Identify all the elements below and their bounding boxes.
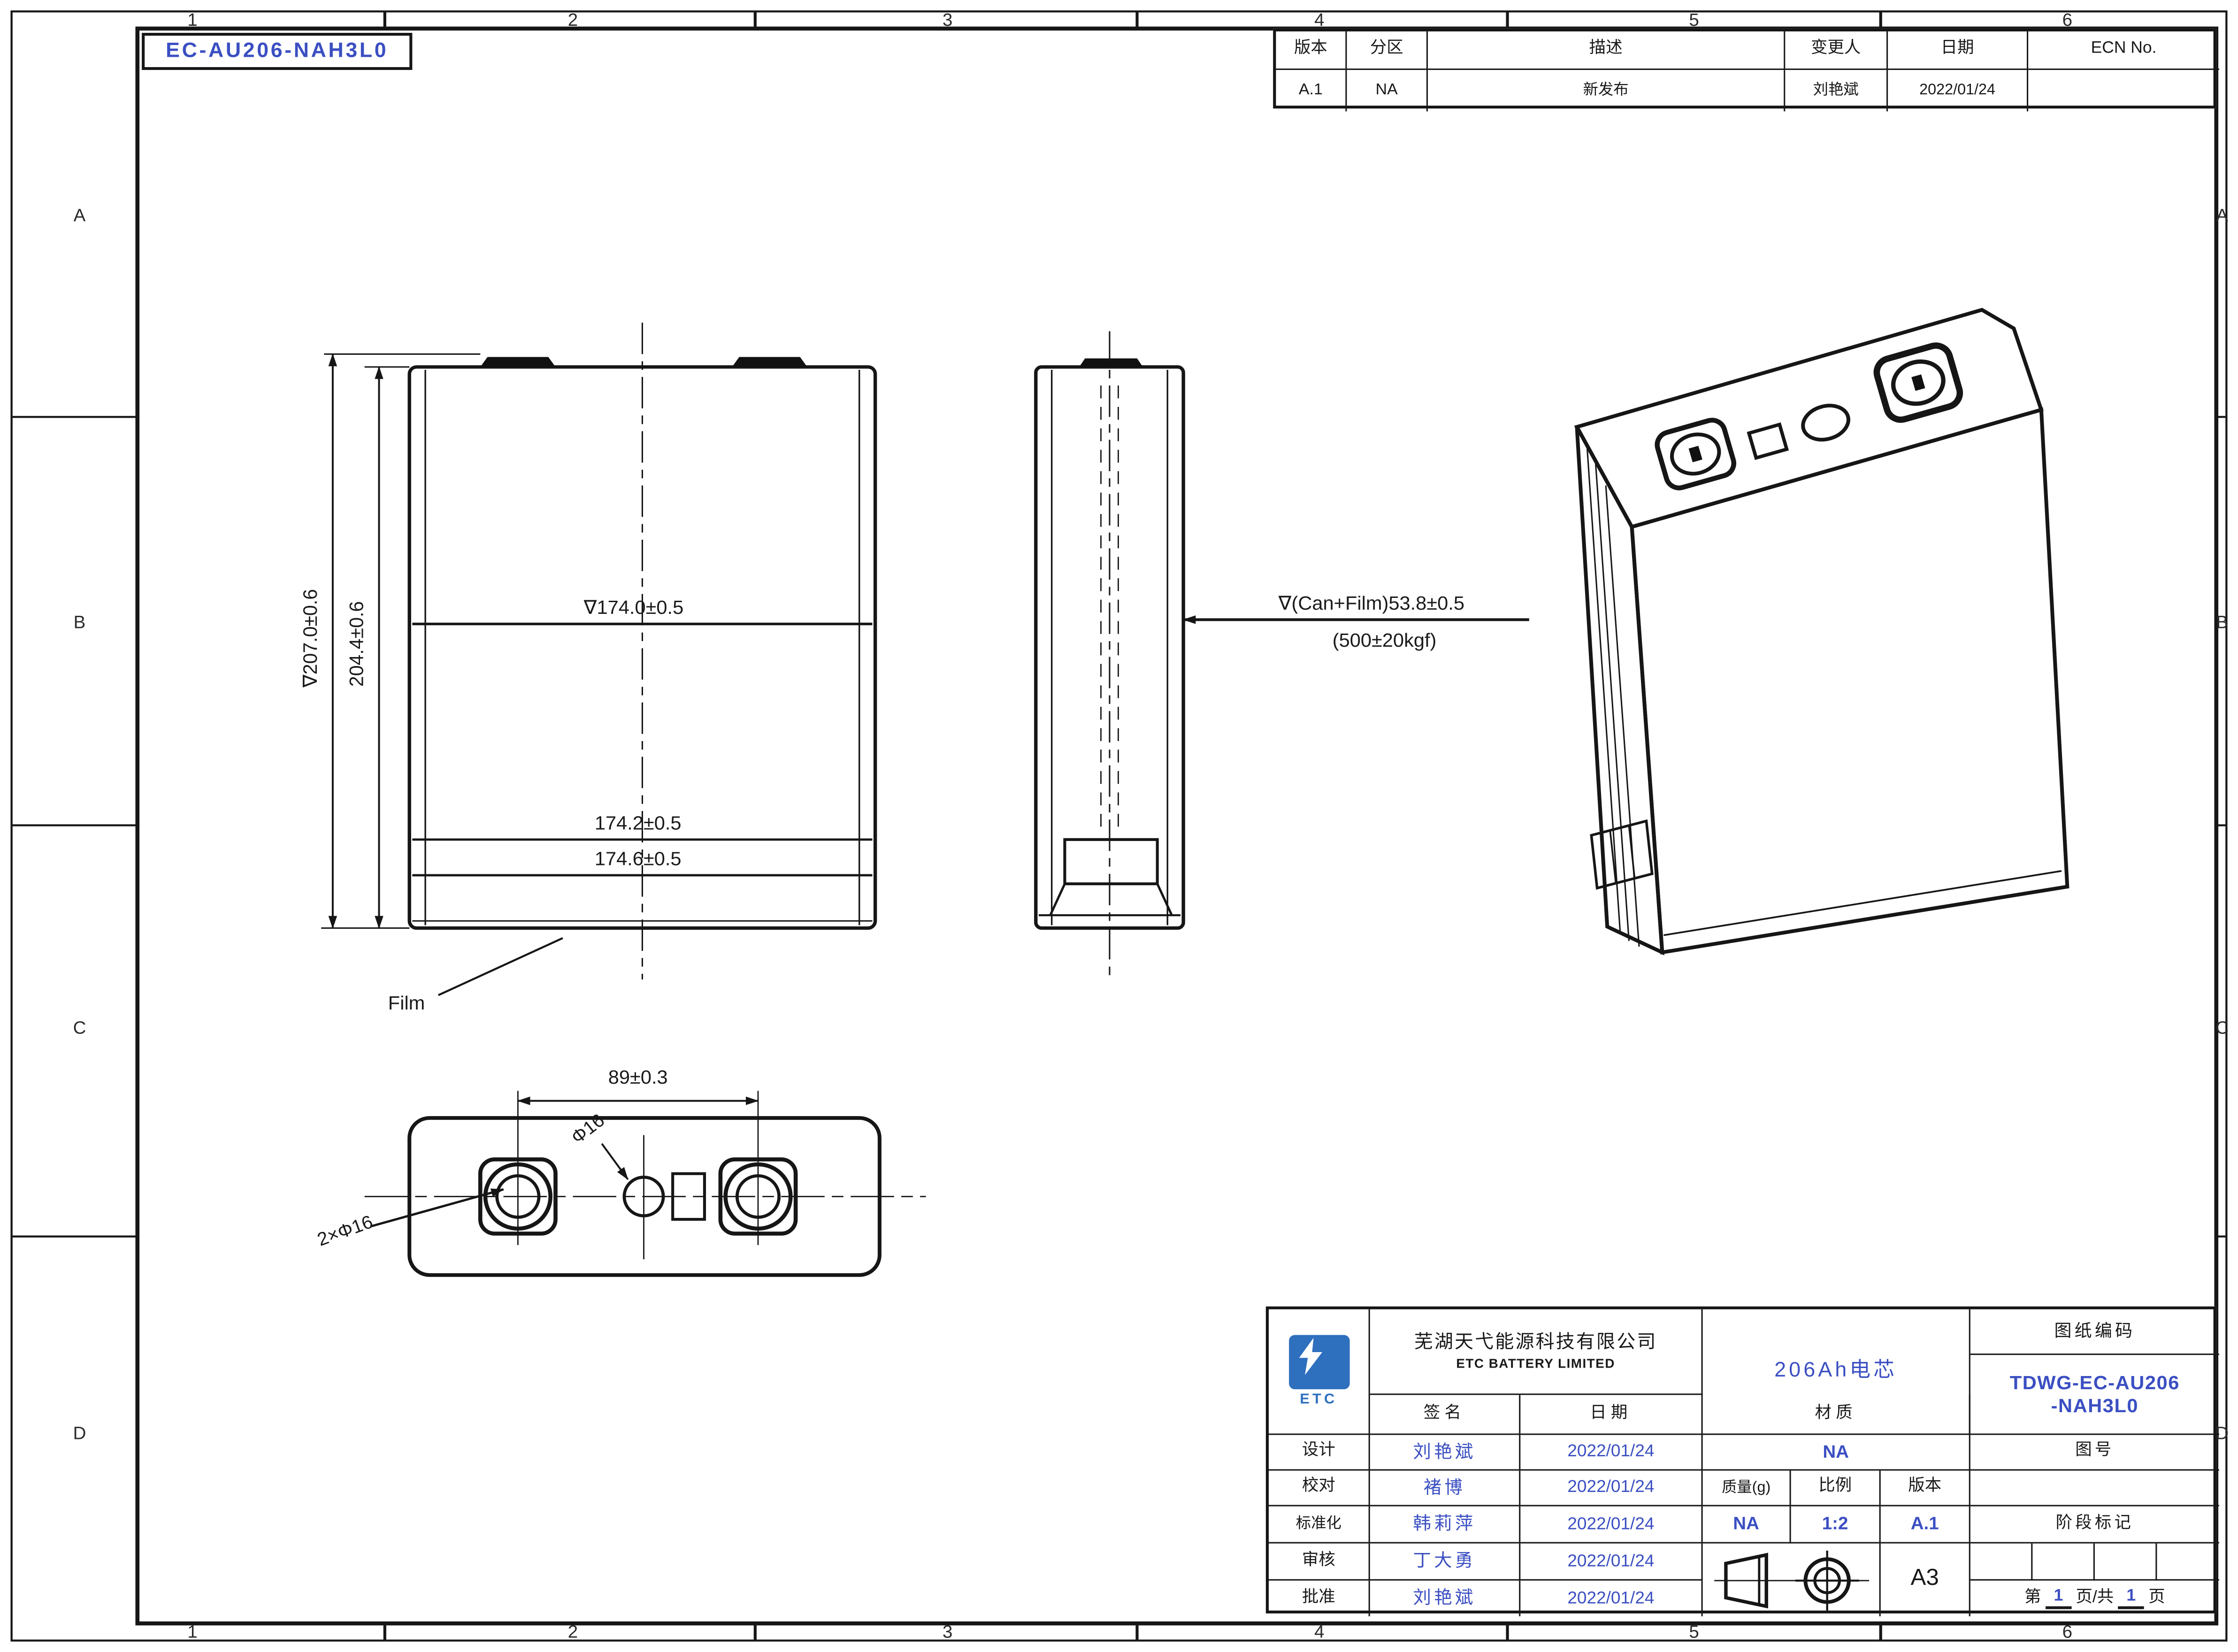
paper-size: A3 — [1881, 1544, 1970, 1616]
page-indicator: 第 1 页/共 1 页 — [1970, 1581, 2219, 1616]
company-logo: ETC — [1269, 1309, 1370, 1435]
rev-header-description: 描述 — [1428, 31, 1785, 70]
zone-right-b: B — [2216, 612, 2228, 633]
mass-value: NA — [1703, 1507, 1791, 1544]
drawing-code-value: TDWG-EC-AU206 -NAH3L0 — [1970, 1355, 2219, 1435]
rev-value-changed-by: 刘艳斌 — [1785, 70, 1888, 111]
zone-right-c: C — [2215, 1018, 2229, 1038]
date-standardization: 2022/01/24 — [1520, 1507, 1702, 1544]
company-name-cell: 芜湖天弋能源科技有限公司 ETC BATTERY LIMITED — [1370, 1309, 1703, 1395]
zone-left-c: C — [73, 1018, 86, 1038]
version-value: A.1 — [1881, 1507, 1970, 1544]
role-design: 设计 — [1269, 1435, 1370, 1471]
drawing-code-label: 图纸编码 — [1970, 1309, 2219, 1355]
zone-top-5: 5 — [1689, 10, 1699, 30]
front-terminal-left — [480, 357, 555, 367]
projection-symbol-cell — [1703, 1544, 1881, 1616]
role-check: 校对 — [1269, 1471, 1370, 1507]
dim-174-6: 174.6±0.5 — [595, 848, 682, 870]
rev-header-changed-by: 变更人 — [1785, 31, 1888, 70]
date-design: 2022/01/24 — [1520, 1435, 1702, 1471]
dim-terminal-diameter: 2×Φ16 — [314, 1211, 376, 1250]
front-terminal-right — [732, 357, 807, 367]
date-review: 2022/01/24 — [1520, 1544, 1702, 1581]
zone-bottom-6: 6 — [2062, 1622, 2072, 1642]
name-check: 褚博 — [1370, 1471, 1521, 1507]
material-value: NA — [1703, 1435, 1970, 1471]
dim-can-film: ∇(Can+Film)53.8±0.5 — [1278, 592, 1464, 614]
zone-top-6: 6 — [2062, 10, 2072, 30]
dim-terminal-pitch: 89±0.3 — [608, 1066, 668, 1088]
rev-value-description: 新发布 — [1428, 70, 1785, 111]
material-label: 材质 — [1703, 1395, 1970, 1435]
page-total: 1 — [2118, 1588, 2144, 1609]
zone-top-1: 1 — [187, 10, 197, 30]
stage-mark-cell-1 — [1970, 1544, 2033, 1581]
zone-top-4: 4 — [1314, 10, 1324, 30]
zone-right-a: A — [2216, 206, 2228, 226]
dim-force: (500±20kgf) — [1333, 629, 1437, 651]
iso-vent-and-label — [1749, 425, 1786, 458]
rev-value-zone: NA — [1347, 70, 1428, 111]
version-label: 版本 — [1881, 1471, 1970, 1507]
side-view — [1036, 331, 1529, 982]
dim-174-2: 174.2±0.5 — [595, 812, 682, 834]
scale-label: 比例 — [1791, 1471, 1881, 1507]
name-standardization: 韩莉萍 — [1370, 1507, 1521, 1544]
mass-label: 质量(g) — [1703, 1471, 1791, 1507]
front-view — [321, 323, 875, 995]
zone-left-b: B — [74, 612, 86, 633]
stage-label: 阶段标记 — [1970, 1507, 2219, 1544]
dim-vent-diameter: Φ16 — [567, 1110, 609, 1148]
page-number: 1 — [2046, 1588, 2071, 1609]
role-approve: 批准 — [1269, 1581, 1370, 1616]
side-terminal — [1079, 359, 1143, 367]
doc-number: EC-AU206-NAH3L0 — [166, 40, 388, 63]
iso-terminal-left — [1654, 417, 1737, 491]
rev-value-ecn — [2028, 70, 2219, 111]
name-design: 刘艳斌 — [1370, 1435, 1521, 1471]
zone-bottom-1: 1 — [187, 1622, 197, 1642]
bottom-view — [365, 1091, 926, 1275]
stage-mark-cell-2 — [2032, 1544, 2095, 1581]
film-label: Film — [388, 992, 425, 1014]
logo-text: ETC — [1300, 1392, 1337, 1408]
drawing-no-value — [1970, 1471, 2219, 1507]
revision-table: 版本 分区 描述 变更人 日期 ECN No. A.1 NA 新发布 刘艳斌 2… — [1273, 29, 2216, 108]
role-standardization: 标准化 — [1269, 1507, 1370, 1544]
date-label: 日期 — [1520, 1395, 1702, 1435]
zone-top-3: 3 — [943, 10, 952, 30]
zone-bottom-2: 2 — [568, 1622, 578, 1642]
date-approve: 2022/01/24 — [1520, 1581, 1702, 1616]
stage-mark-cell-4 — [2157, 1544, 2219, 1581]
signature-label: 签名 — [1370, 1395, 1521, 1435]
rev-header-zone: 分区 — [1347, 31, 1428, 70]
company-name-cn: 芜湖天弋能源科技有限公司 — [1414, 1332, 1657, 1353]
name-review: 丁大勇 — [1370, 1544, 1521, 1581]
zone-bottom-5: 5 — [1689, 1622, 1699, 1642]
dim-height-body: 204.4±0.6 — [345, 601, 367, 687]
doc-number-box: EC-AU206-NAH3L0 — [142, 33, 412, 70]
zone-bottom-3: 3 — [943, 1622, 952, 1642]
dim-174-0: ∇174.0±0.5 — [583, 597, 684, 618]
rev-header-ecn: ECN No. — [2028, 31, 2219, 70]
role-review: 审核 — [1269, 1544, 1370, 1581]
zone-top-2: 2 — [568, 10, 578, 30]
drawing-sheet: 1 2 3 4 5 6 1 2 3 4 5 6 A B C D A B C D — [0, 0, 2238, 1652]
rev-value-version: A.1 — [1276, 70, 1347, 111]
dim-height-overall: ∇207.0±0.6 — [299, 589, 321, 688]
date-check: 2022/01/24 — [1520, 1471, 1702, 1507]
rev-header-date: 日期 — [1888, 31, 2028, 70]
first-angle-projection-icon — [1703, 1544, 1881, 1616]
name-approve: 刘艳斌 — [1370, 1581, 1521, 1616]
zone-left-a: A — [74, 206, 86, 226]
zone-bottom-4: 4 — [1314, 1622, 1324, 1642]
rev-value-date: 2022/01/24 — [1888, 70, 2028, 111]
isometric-view — [1577, 310, 2067, 952]
zone-left-d: D — [73, 1423, 86, 1444]
drawing-no-label: 图号 — [1970, 1435, 2219, 1471]
rev-header-version: 版本 — [1276, 31, 1347, 70]
stage-mark-cell-3 — [2095, 1544, 2157, 1581]
title-block: ETC 芜湖天弋能源科技有限公司 ETC BATTERY LIMITED 206… — [1266, 1307, 2216, 1614]
company-name-en: ETC BATTERY LIMITED — [1456, 1356, 1615, 1371]
iso-terminal-right — [1873, 342, 1963, 423]
etc-logo-icon — [1288, 1335, 1349, 1389]
scale-value: 1:2 — [1791, 1507, 1881, 1544]
